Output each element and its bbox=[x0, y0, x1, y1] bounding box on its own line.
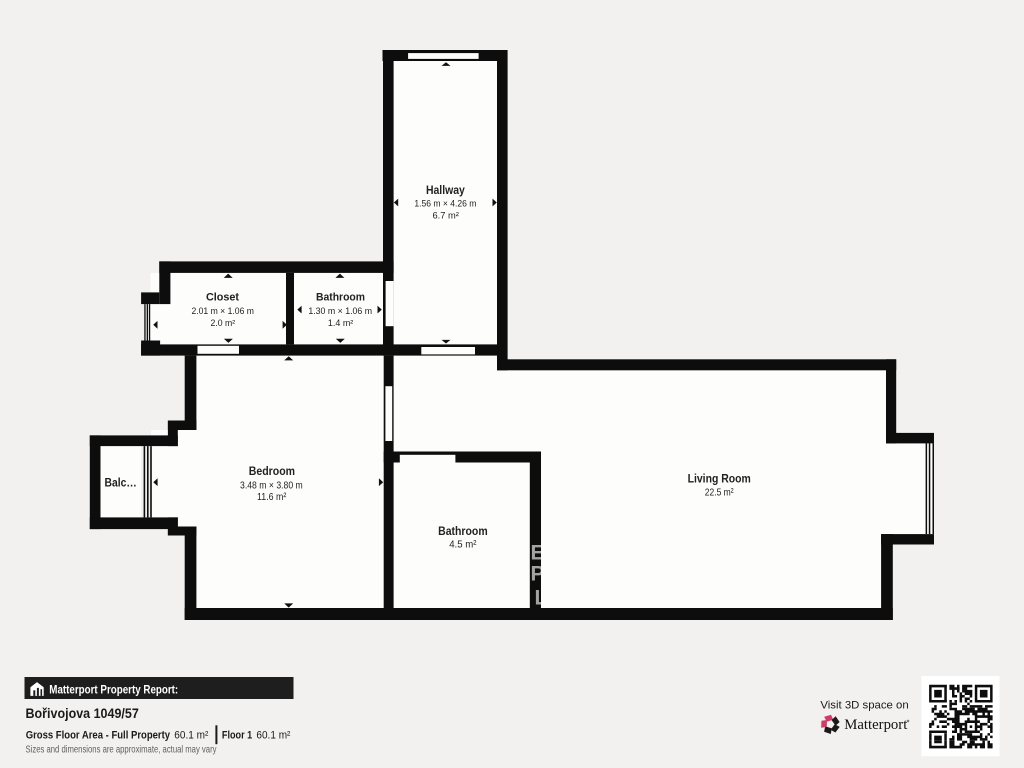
svg-text:Bathroom: Bathroom bbox=[316, 292, 365, 304]
svg-text:60.1 m²: 60.1 m² bbox=[174, 729, 208, 741]
svg-text:6.7 m²: 6.7 m² bbox=[433, 210, 460, 221]
svg-text:Bedroom: Bedroom bbox=[249, 464, 295, 478]
svg-text:22.5 m²: 22.5 m² bbox=[705, 487, 734, 498]
svg-text:Bathroom: Bathroom bbox=[438, 524, 488, 538]
svg-text:4.5 m²: 4.5 m² bbox=[449, 540, 477, 551]
svg-text:1.30 m × 1.06 m: 1.30 m × 1.06 m bbox=[308, 306, 372, 316]
svg-text:Matterport Property Report:: Matterport Property Report: bbox=[49, 684, 178, 696]
svg-text:Bořivojova 1049/57: Bořivojova 1049/57 bbox=[26, 705, 139, 721]
svg-text:3.48 m × 3.80 m: 3.48 m × 3.80 m bbox=[240, 480, 303, 491]
svg-text:Living Room: Living Room bbox=[688, 471, 751, 485]
svg-text:Closet: Closet bbox=[206, 292, 239, 304]
svg-text:Hallway: Hallway bbox=[426, 183, 465, 197]
svg-text:Balc…: Balc… bbox=[105, 475, 137, 489]
svg-text:11.6 m²: 11.6 m² bbox=[257, 492, 287, 503]
svg-text:Sizes and dimensions are appro: Sizes and dimensions are approximate, ac… bbox=[26, 745, 217, 756]
svg-text:1.4 m²: 1.4 m² bbox=[328, 318, 353, 328]
svg-text:2.0 m²: 2.0 m² bbox=[211, 318, 236, 328]
svg-text:Gross Floor Area - Full Proper: Gross Floor Area - Full Property bbox=[26, 729, 171, 741]
svg-text:Matterport: Matterport bbox=[844, 717, 908, 733]
svg-text:Visit 3D space on: Visit 3D space on bbox=[820, 699, 908, 711]
svg-text:1.56 m × 4.26 m: 1.56 m × 4.26 m bbox=[414, 199, 476, 210]
svg-text:60.1 m²: 60.1 m² bbox=[256, 729, 290, 741]
svg-text:2.01 m × 1.06 m: 2.01 m × 1.06 m bbox=[191, 306, 254, 316]
svg-text:Floor 1: Floor 1 bbox=[222, 729, 252, 741]
